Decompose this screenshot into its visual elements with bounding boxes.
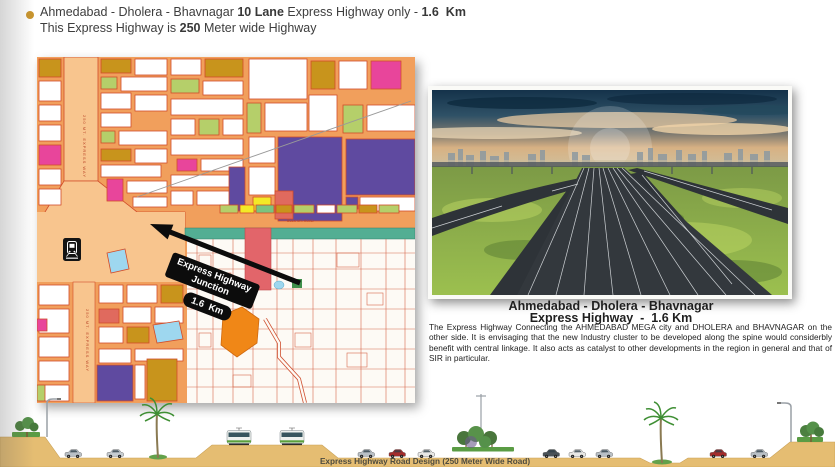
streetlight-icon xyxy=(777,402,791,442)
car-icon xyxy=(710,450,768,459)
median-trees xyxy=(452,394,514,452)
master-plan-map: 250 MT. EXPRESS WAY 250 MT. EXPRESS WAY … xyxy=(37,57,415,403)
expressway-label-2: 250 MT. EXPRESS WAY xyxy=(85,309,90,372)
photo-caption-body: The Express Highway Connecting the AHMED… xyxy=(429,322,832,363)
slide-edge-shade xyxy=(0,0,34,467)
road-cross-section: Express Highway Road Design (250 Meter W… xyxy=(0,390,835,467)
cross-section-svg: Express Highway Road Design (250 Meter W… xyxy=(0,390,835,467)
presentation-slide: Ahmedabad - Dholera - Bhavnagar 10 Lane … xyxy=(0,0,835,467)
highway-photo-svg xyxy=(432,90,788,295)
cross-section-title: Express Highway Road Design (250 Meter W… xyxy=(320,457,530,466)
tree-icon xyxy=(797,422,824,443)
header-line-1: Ahmedabad - Dholera - Bhavnagar 10 Lane … xyxy=(40,4,466,20)
road-label: BULK MT. ROAD xyxy=(287,219,314,223)
highway-photo xyxy=(428,86,792,299)
map-svg: 250 MT. EXPRESS WAY 250 MT. EXPRESS WAY … xyxy=(37,57,415,403)
metro-station-icon xyxy=(63,238,81,261)
palm-tree-icon xyxy=(140,398,174,460)
palm-tree-icon xyxy=(644,402,678,465)
slide-header: Ahmedabad - Dholera - Bhavnagar 10 Lane … xyxy=(40,4,466,36)
car-icon xyxy=(543,450,613,459)
header-line-2: This Express Highway is 250 Meter wide H… xyxy=(40,20,466,36)
pond xyxy=(274,281,284,289)
tram-icon xyxy=(227,428,304,445)
expressway-label: 250 MT. EXPRESS WAY xyxy=(82,115,87,178)
streetlight-icon xyxy=(47,398,61,437)
car-icon xyxy=(65,450,124,459)
